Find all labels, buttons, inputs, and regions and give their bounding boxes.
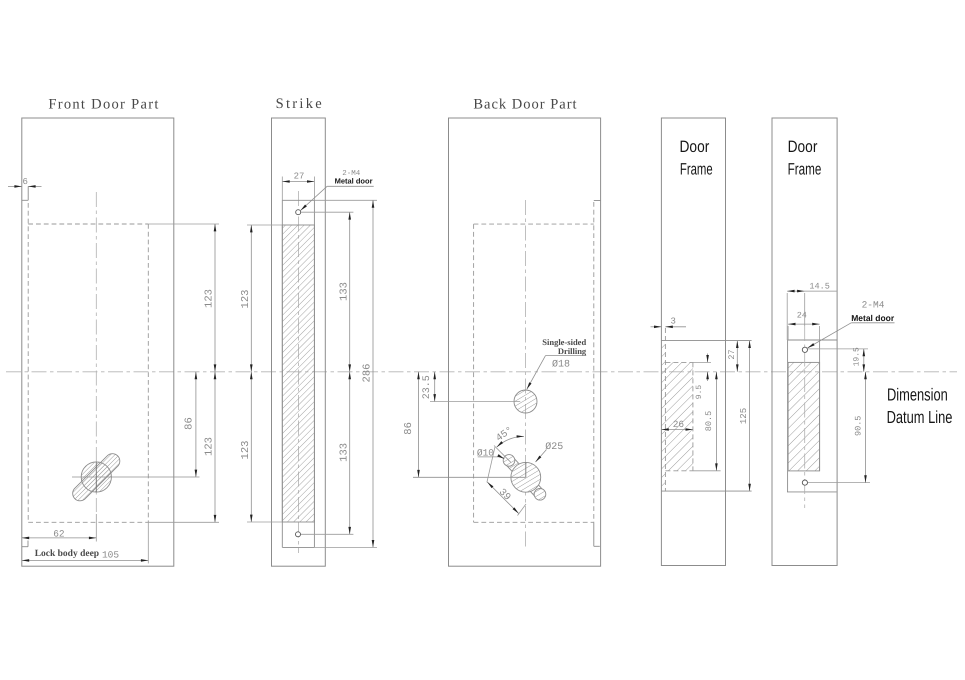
svg-text:Door: Door bbox=[788, 138, 818, 156]
svg-text:123: 123 bbox=[204, 437, 216, 456]
svg-text:2-M4: 2-M4 bbox=[862, 300, 885, 311]
svg-text:86: 86 bbox=[403, 422, 415, 435]
svg-text:14.5: 14.5 bbox=[809, 281, 829, 291]
svg-text:Door: Door bbox=[680, 138, 710, 156]
svg-text:Metal door: Metal door bbox=[851, 313, 895, 323]
svg-text:27: 27 bbox=[294, 172, 305, 182]
svg-text:6: 6 bbox=[22, 177, 27, 187]
svg-text:24: 24 bbox=[797, 311, 807, 321]
svg-text:26: 26 bbox=[673, 419, 685, 430]
svg-text:23.5: 23.5 bbox=[422, 375, 433, 399]
svg-text:123: 123 bbox=[240, 441, 252, 460]
svg-text:27: 27 bbox=[727, 349, 737, 359]
svg-text:Lock body deep: Lock body deep bbox=[35, 549, 99, 559]
svg-text:123: 123 bbox=[204, 289, 216, 308]
svg-text:62: 62 bbox=[53, 529, 65, 540]
svg-text:Ø18: Ø18 bbox=[552, 359, 570, 370]
svg-text:133: 133 bbox=[338, 282, 350, 301]
svg-text:Metal door: Metal door bbox=[335, 177, 373, 186]
svg-text:Strike: Strike bbox=[276, 96, 324, 112]
svg-text:Drilling: Drilling bbox=[558, 346, 587, 356]
svg-text:90.5: 90.5 bbox=[854, 416, 864, 436]
svg-text:123: 123 bbox=[240, 290, 252, 309]
svg-text:19.5: 19.5 bbox=[852, 347, 861, 366]
svg-text:286: 286 bbox=[362, 364, 374, 383]
svg-text:9.5: 9.5 bbox=[695, 385, 704, 400]
svg-text:Frame: Frame bbox=[680, 161, 713, 179]
svg-text:133: 133 bbox=[338, 443, 350, 462]
svg-text:Back Door Part: Back Door Part bbox=[473, 96, 577, 112]
svg-text:125: 125 bbox=[739, 408, 749, 424]
svg-text:105: 105 bbox=[102, 550, 119, 561]
svg-text:86: 86 bbox=[183, 417, 195, 430]
svg-text:Datum Line: Datum Line bbox=[887, 407, 953, 427]
svg-text:80.5: 80.5 bbox=[704, 411, 714, 431]
svg-text:Frame: Frame bbox=[788, 161, 822, 179]
svg-text:Ø25: Ø25 bbox=[545, 442, 563, 453]
svg-text:Dimension: Dimension bbox=[887, 385, 948, 405]
svg-text:3: 3 bbox=[670, 317, 675, 327]
svg-text:Front Door Part: Front Door Part bbox=[48, 96, 159, 112]
